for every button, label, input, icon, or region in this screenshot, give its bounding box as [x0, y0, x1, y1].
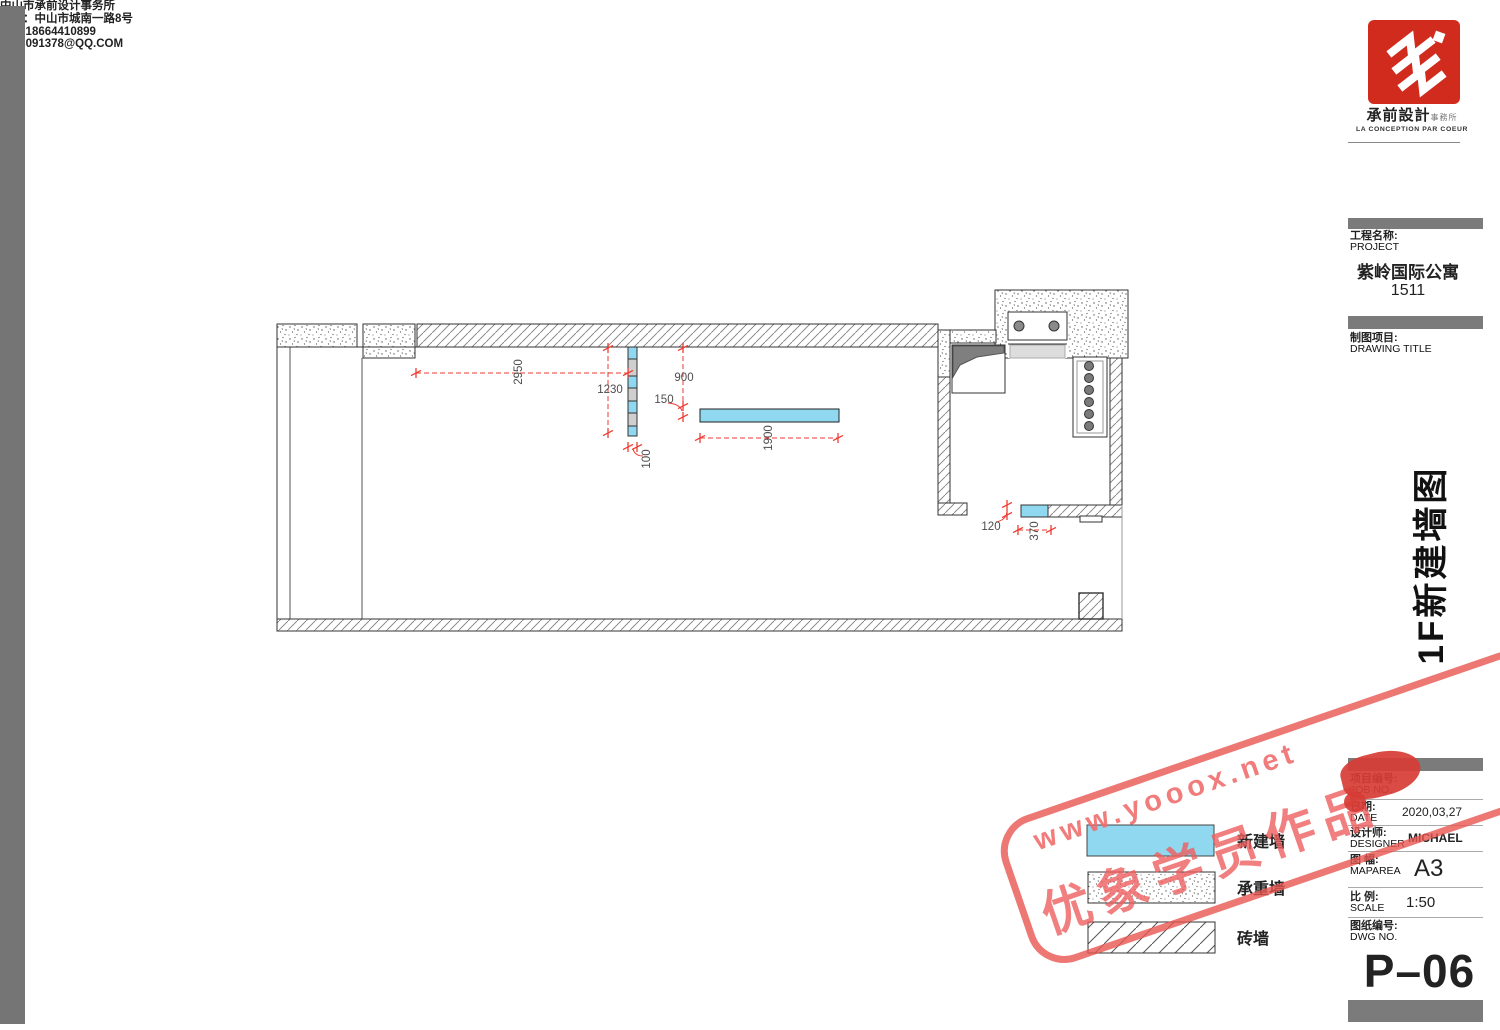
- designer-label-en: DESIGNER: [1350, 839, 1405, 850]
- new-wall-segment: [1021, 505, 1048, 517]
- section-bar: [1348, 1000, 1483, 1022]
- sink-hole: [1049, 321, 1059, 331]
- dim-1900: 1900: [763, 425, 775, 451]
- divider: [1348, 142, 1460, 143]
- dim-120: 120: [981, 521, 1000, 533]
- legend-label-load-bearing: 承重墙: [1237, 879, 1285, 898]
- legend: 新建墙 承重墙 砖墙: [1087, 825, 1285, 953]
- dim-150: 150: [654, 394, 673, 406]
- project-unit: 1511: [1348, 282, 1468, 300]
- legend-swatch-load-bearing: [1088, 872, 1215, 903]
- dim-2950: 2950: [513, 359, 525, 385]
- logo-subtitle: LA CONCEPTION PAR COEUR: [1352, 126, 1472, 133]
- counter-front: [1010, 345, 1065, 358]
- legend-swatch-new-wall: [1087, 825, 1214, 856]
- new-wall-bar: [700, 409, 839, 422]
- maparea-label-en: MAPAREA: [1350, 866, 1401, 877]
- date-label-en: DATE: [1350, 813, 1377, 824]
- scale-label-en: SCALE: [1350, 903, 1384, 914]
- dim-1230: 1230: [597, 384, 623, 396]
- drawing-label-en: DRAWING TITLE: [1350, 344, 1432, 355]
- logo-suffix: 事務所: [1431, 113, 1458, 122]
- date-value: 2020,03,27: [1402, 805, 1462, 819]
- sheet-title-vertical: 1F新建墙图: [1403, 430, 1447, 700]
- legend-swatch-brick: [1088, 922, 1215, 953]
- logo-text: 承前設計: [1366, 107, 1430, 124]
- logo-caption: 承前設計事務所: [1352, 104, 1472, 125]
- dim-370: 370: [1029, 521, 1041, 540]
- section-bar: [1348, 316, 1483, 329]
- project-name: 紫岭国际公寓: [1348, 258, 1468, 283]
- divider: [1348, 799, 1483, 800]
- job-label-en: JOB NO.: [1350, 785, 1392, 796]
- door-stop: [1080, 516, 1102, 522]
- bottom-wall: [277, 593, 1122, 631]
- new-stud-wall: [628, 347, 637, 436]
- section-bar: [1348, 758, 1483, 771]
- divider: [1348, 825, 1483, 826]
- legend-label-brick: 砖墙: [1237, 929, 1269, 948]
- section-bar: [1348, 218, 1483, 229]
- company-logo: [1368, 20, 1460, 104]
- designer-value: MICHAEL: [1408, 831, 1463, 845]
- sink-hole: [1014, 321, 1024, 331]
- dwg-number: P–06: [1352, 944, 1487, 998]
- drawing-sheet: 2950 1230 900 150 100 1900 120 370 新建墙 承…: [0, 0, 1500, 1030]
- divider: [1348, 917, 1483, 918]
- dim-100: 100: [641, 449, 653, 468]
- left-wall: [277, 324, 938, 631]
- divider: [1348, 887, 1483, 888]
- scale-value: 1:50: [1406, 894, 1435, 911]
- kitchen-bath-block: [938, 290, 1128, 619]
- divider: [1348, 851, 1483, 852]
- project-label-en: PROJECT: [1350, 242, 1399, 253]
- legend-label-new-wall: 新建墙: [1237, 832, 1285, 851]
- dwg-label-en: DWG NO.: [1350, 932, 1397, 943]
- dim-900: 900: [674, 372, 693, 384]
- maparea-value: A3: [1414, 855, 1443, 883]
- floor-plan-svg: 2950 1230 900 150 100 1900 120 370 新建墙 承…: [0, 0, 1500, 1030]
- appliance-strip: [1073, 357, 1107, 437]
